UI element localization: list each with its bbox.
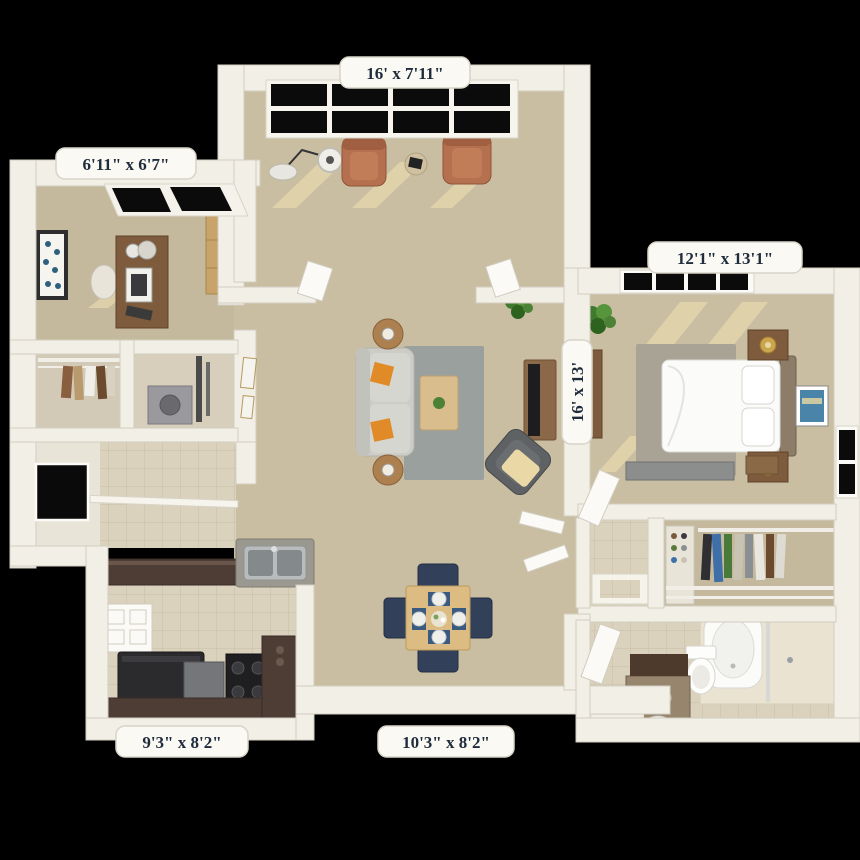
- label-office: 6'11" x 6'7": [56, 148, 196, 179]
- wire-shelf: [666, 586, 834, 590]
- office-window: [104, 184, 248, 216]
- dining-table: [406, 586, 470, 650]
- desk-chair: [91, 265, 117, 299]
- sink-counter: [236, 539, 314, 587]
- office-desk: [116, 236, 168, 328]
- tub-faucet: [787, 657, 793, 663]
- plate: [412, 612, 426, 626]
- plate: [452, 612, 466, 626]
- utility-pipes: [196, 356, 202, 422]
- label-sunroom: 16' x 7'11": [340, 57, 470, 88]
- bedroom-dimensions: 12'1" x 13'1": [677, 249, 773, 268]
- vanity-backsplash: [630, 654, 688, 676]
- vanity-nook: [592, 574, 648, 604]
- label-bedroom: 12'1" x 13'1": [648, 242, 802, 273]
- hall-tile-floor: [100, 442, 236, 548]
- coffee-table: [420, 376, 458, 430]
- tv: [528, 364, 540, 436]
- bed: [662, 356, 796, 456]
- canister: [276, 646, 284, 654]
- pillow: [742, 366, 774, 404]
- wire-shelf: [38, 358, 120, 362]
- pillow: [742, 408, 774, 446]
- canister: [276, 658, 284, 666]
- shower-glass: [766, 612, 770, 702]
- tv-console: [524, 360, 556, 440]
- living-room-dimensions: 16' x 13': [568, 362, 587, 422]
- shoe-shelf: [666, 526, 694, 604]
- low-dresser: [626, 462, 734, 480]
- headboard: [780, 356, 796, 456]
- bedroom-side-window: [836, 426, 858, 498]
- kitchen-dimensions: 9'3" x 8'2": [142, 733, 221, 752]
- dining-dimensions: 10'3" x 8'2": [402, 733, 490, 752]
- sofa: [356, 348, 414, 456]
- sunroom-dimensions: 16' x 7'11": [366, 64, 443, 83]
- closet-rod: [698, 528, 834, 532]
- label-kitchen: 9'3" x 8'2": [116, 726, 248, 757]
- label-living-room: 16' x 13': [562, 340, 592, 444]
- end-table: [373, 319, 403, 349]
- floor-plan: 16' x 7'11" 6'11" x 6'7" 12'1" x 13'1" 1…: [0, 0, 860, 860]
- throw-pillow: [370, 418, 394, 442]
- nightstand: [748, 330, 788, 360]
- office-dimensions: 6'11" x 6'7": [83, 155, 170, 174]
- pantry-doors: [102, 604, 152, 652]
- side-table: [405, 153, 427, 175]
- floor-plan-stage: 16' x 7'11" 6'11" x 6'7" 12'1" x 13'1" 1…: [0, 0, 860, 860]
- label-dining: 10'3" x 8'2": [378, 726, 514, 757]
- armchair: [342, 138, 386, 186]
- table-plant: [433, 397, 445, 409]
- bedroom-wall-art: [796, 386, 828, 426]
- plate: [432, 592, 446, 606]
- bench: [746, 456, 778, 474]
- dishwasher: [184, 662, 224, 700]
- end-table: [373, 455, 403, 485]
- armchair: [443, 134, 491, 184]
- office-wall-art: [36, 230, 68, 300]
- plate: [432, 630, 446, 644]
